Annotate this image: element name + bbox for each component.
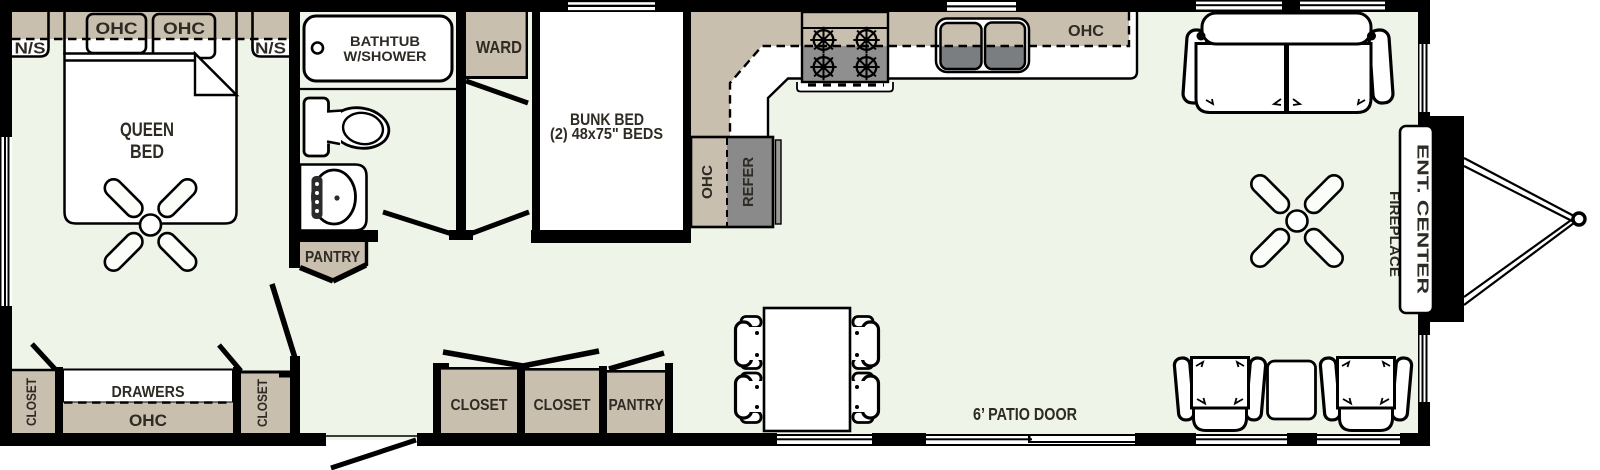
svg-text:CLOSET: CLOSET (24, 377, 39, 426)
svg-text:(2) 48x75" BEDS: (2) 48x75" BEDS (550, 126, 663, 143)
svg-text:BED: BED (130, 142, 164, 163)
svg-text:ENT. CENTER: ENT. CENTER (1414, 144, 1431, 294)
svg-text:DRAWERS: DRAWERS (112, 384, 185, 401)
svg-text:N/S: N/S (15, 41, 46, 58)
svg-text:OHC: OHC (1068, 23, 1104, 40)
svg-text:PANTRY: PANTRY (609, 397, 665, 414)
svg-text:CLOSET: CLOSET (451, 397, 508, 414)
svg-text:OHC: OHC (96, 19, 138, 38)
svg-text:WARD: WARD (476, 37, 522, 57)
svg-text:OHC: OHC (700, 164, 716, 199)
svg-text:CLOSET: CLOSET (255, 378, 270, 427)
svg-text:BATHTUB: BATHTUB (350, 34, 420, 49)
svg-text:QUEEN: QUEEN (120, 120, 174, 141)
svg-text:PANTRY: PANTRY (305, 249, 361, 266)
svg-text:REFER: REFER (741, 156, 757, 207)
svg-text:OHC: OHC (163, 19, 205, 38)
svg-text:6’ PATIO DOOR: 6’ PATIO DOOR (973, 404, 1077, 424)
svg-text:N/S: N/S (255, 41, 286, 58)
svg-text:OHC: OHC (129, 412, 167, 430)
svg-text:W/SHOWER: W/SHOWER (344, 49, 427, 64)
svg-text:CLOSET: CLOSET (534, 397, 591, 414)
